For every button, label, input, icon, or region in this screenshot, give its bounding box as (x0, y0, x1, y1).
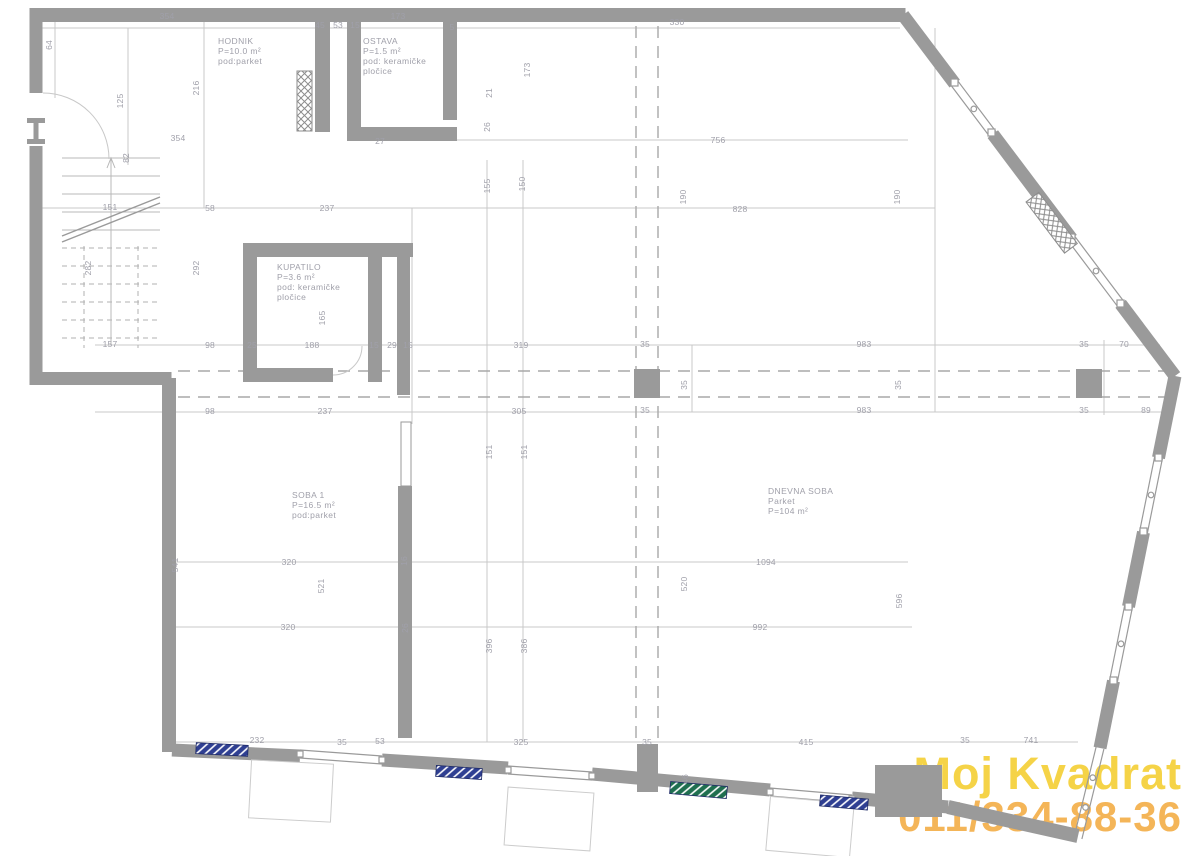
dimension-label: 319 (514, 340, 529, 350)
dimension-label: 216 (191, 81, 201, 96)
dimension-label: 354 (160, 11, 175, 21)
dimension-label: 155 (482, 179, 492, 194)
floor-plan-canvas: Moj Kvadrat 011/334-88-36 (0, 0, 1200, 856)
dimension-label: 188 (305, 340, 320, 350)
dimension-label: 15 (403, 340, 413, 350)
dimension-label: 82 (121, 153, 131, 163)
dimension-label: 125 (115, 94, 125, 109)
dimension-label: 89 (1141, 405, 1151, 415)
dimension-label: 35 (893, 380, 903, 390)
dimension-label: 151 (484, 445, 494, 460)
dimension-label: 992 (753, 622, 768, 632)
dimension-label: 320 (282, 557, 297, 567)
dimension-label: 35 (640, 405, 650, 415)
dimension-label: 541 (170, 558, 180, 573)
dimension-label: 64 (44, 40, 54, 50)
dimension-label: 27 (375, 136, 385, 146)
dimension-label: 151 (103, 202, 118, 212)
dimension-label: 26 (400, 623, 410, 633)
dimension-label: 237 (320, 203, 335, 213)
dimension-label: 596 (894, 594, 904, 609)
dimension-label: 26 (482, 122, 492, 132)
dimension-label: 46 (680, 774, 690, 784)
dimension-label: 151 (519, 445, 529, 460)
dimension-label: 15 (369, 340, 379, 350)
dimension-label: 35 (679, 380, 689, 390)
dimension-label: 58 (205, 203, 215, 213)
dimension-label: 983 (857, 405, 872, 415)
dimension-label: 292 (191, 261, 201, 276)
dimension-label: 5 (450, 22, 455, 32)
dimension-label: 53 (333, 20, 343, 30)
dimension-label: 354 (171, 133, 186, 143)
dimension-label: 15 (350, 20, 360, 30)
dimension-label: 1094 (756, 557, 776, 567)
dimension-label: 35 (960, 735, 970, 745)
dimension-label: 386 (519, 639, 529, 654)
dimension-label: 98 (205, 406, 215, 416)
dimension-label: 520 (679, 577, 689, 592)
dimension-label: 70 (1119, 339, 1129, 349)
dimension-label: 330 (670, 17, 685, 27)
dimension-label: 35 (1079, 339, 1089, 349)
dimension-label: 150 (517, 177, 527, 192)
dimension-label: 232 (250, 735, 265, 745)
dimension-label: 756 (711, 135, 726, 145)
dimension-label: 828 (733, 204, 748, 214)
dimension-label: 173 (522, 63, 532, 78)
dimension-label: 415 (799, 737, 814, 747)
dimension-label: 173 (391, 11, 406, 21)
dimension-label: 983 (857, 339, 872, 349)
dimension-label: 237 (318, 406, 333, 416)
dimension-label: 521 (316, 579, 326, 594)
dimension-label: 21 (484, 88, 494, 98)
dimension-label: 45 (315, 20, 325, 30)
dimension-label: 35 (337, 737, 347, 747)
dimension-label: 16 (399, 556, 409, 566)
dimension-label: 396 (484, 639, 494, 654)
dimension-label: 320 (281, 622, 296, 632)
dimension-label: 165 (317, 311, 327, 326)
dimension-label: 190 (678, 190, 688, 205)
dimension-label: 25 (247, 340, 257, 350)
dimension-label: 305 (512, 406, 527, 416)
dimension-label: 741 (1024, 735, 1039, 745)
dimension-label: 35 (640, 339, 650, 349)
dimension-label: 98 (205, 340, 215, 350)
dimension-label: 325 (514, 737, 529, 747)
dimension-label: 35 (1079, 405, 1089, 415)
dimension-label: 282 (83, 261, 93, 276)
dimension-label: 35 (642, 737, 652, 747)
dimension-label: 29 (387, 340, 397, 350)
dimension-label: 190 (892, 190, 902, 205)
dimension-label: 157 (103, 339, 118, 349)
dimension-label: 53 (375, 736, 385, 746)
dimension-labels-layer: 3544553151735330642161253542782173212675… (0, 0, 1200, 856)
